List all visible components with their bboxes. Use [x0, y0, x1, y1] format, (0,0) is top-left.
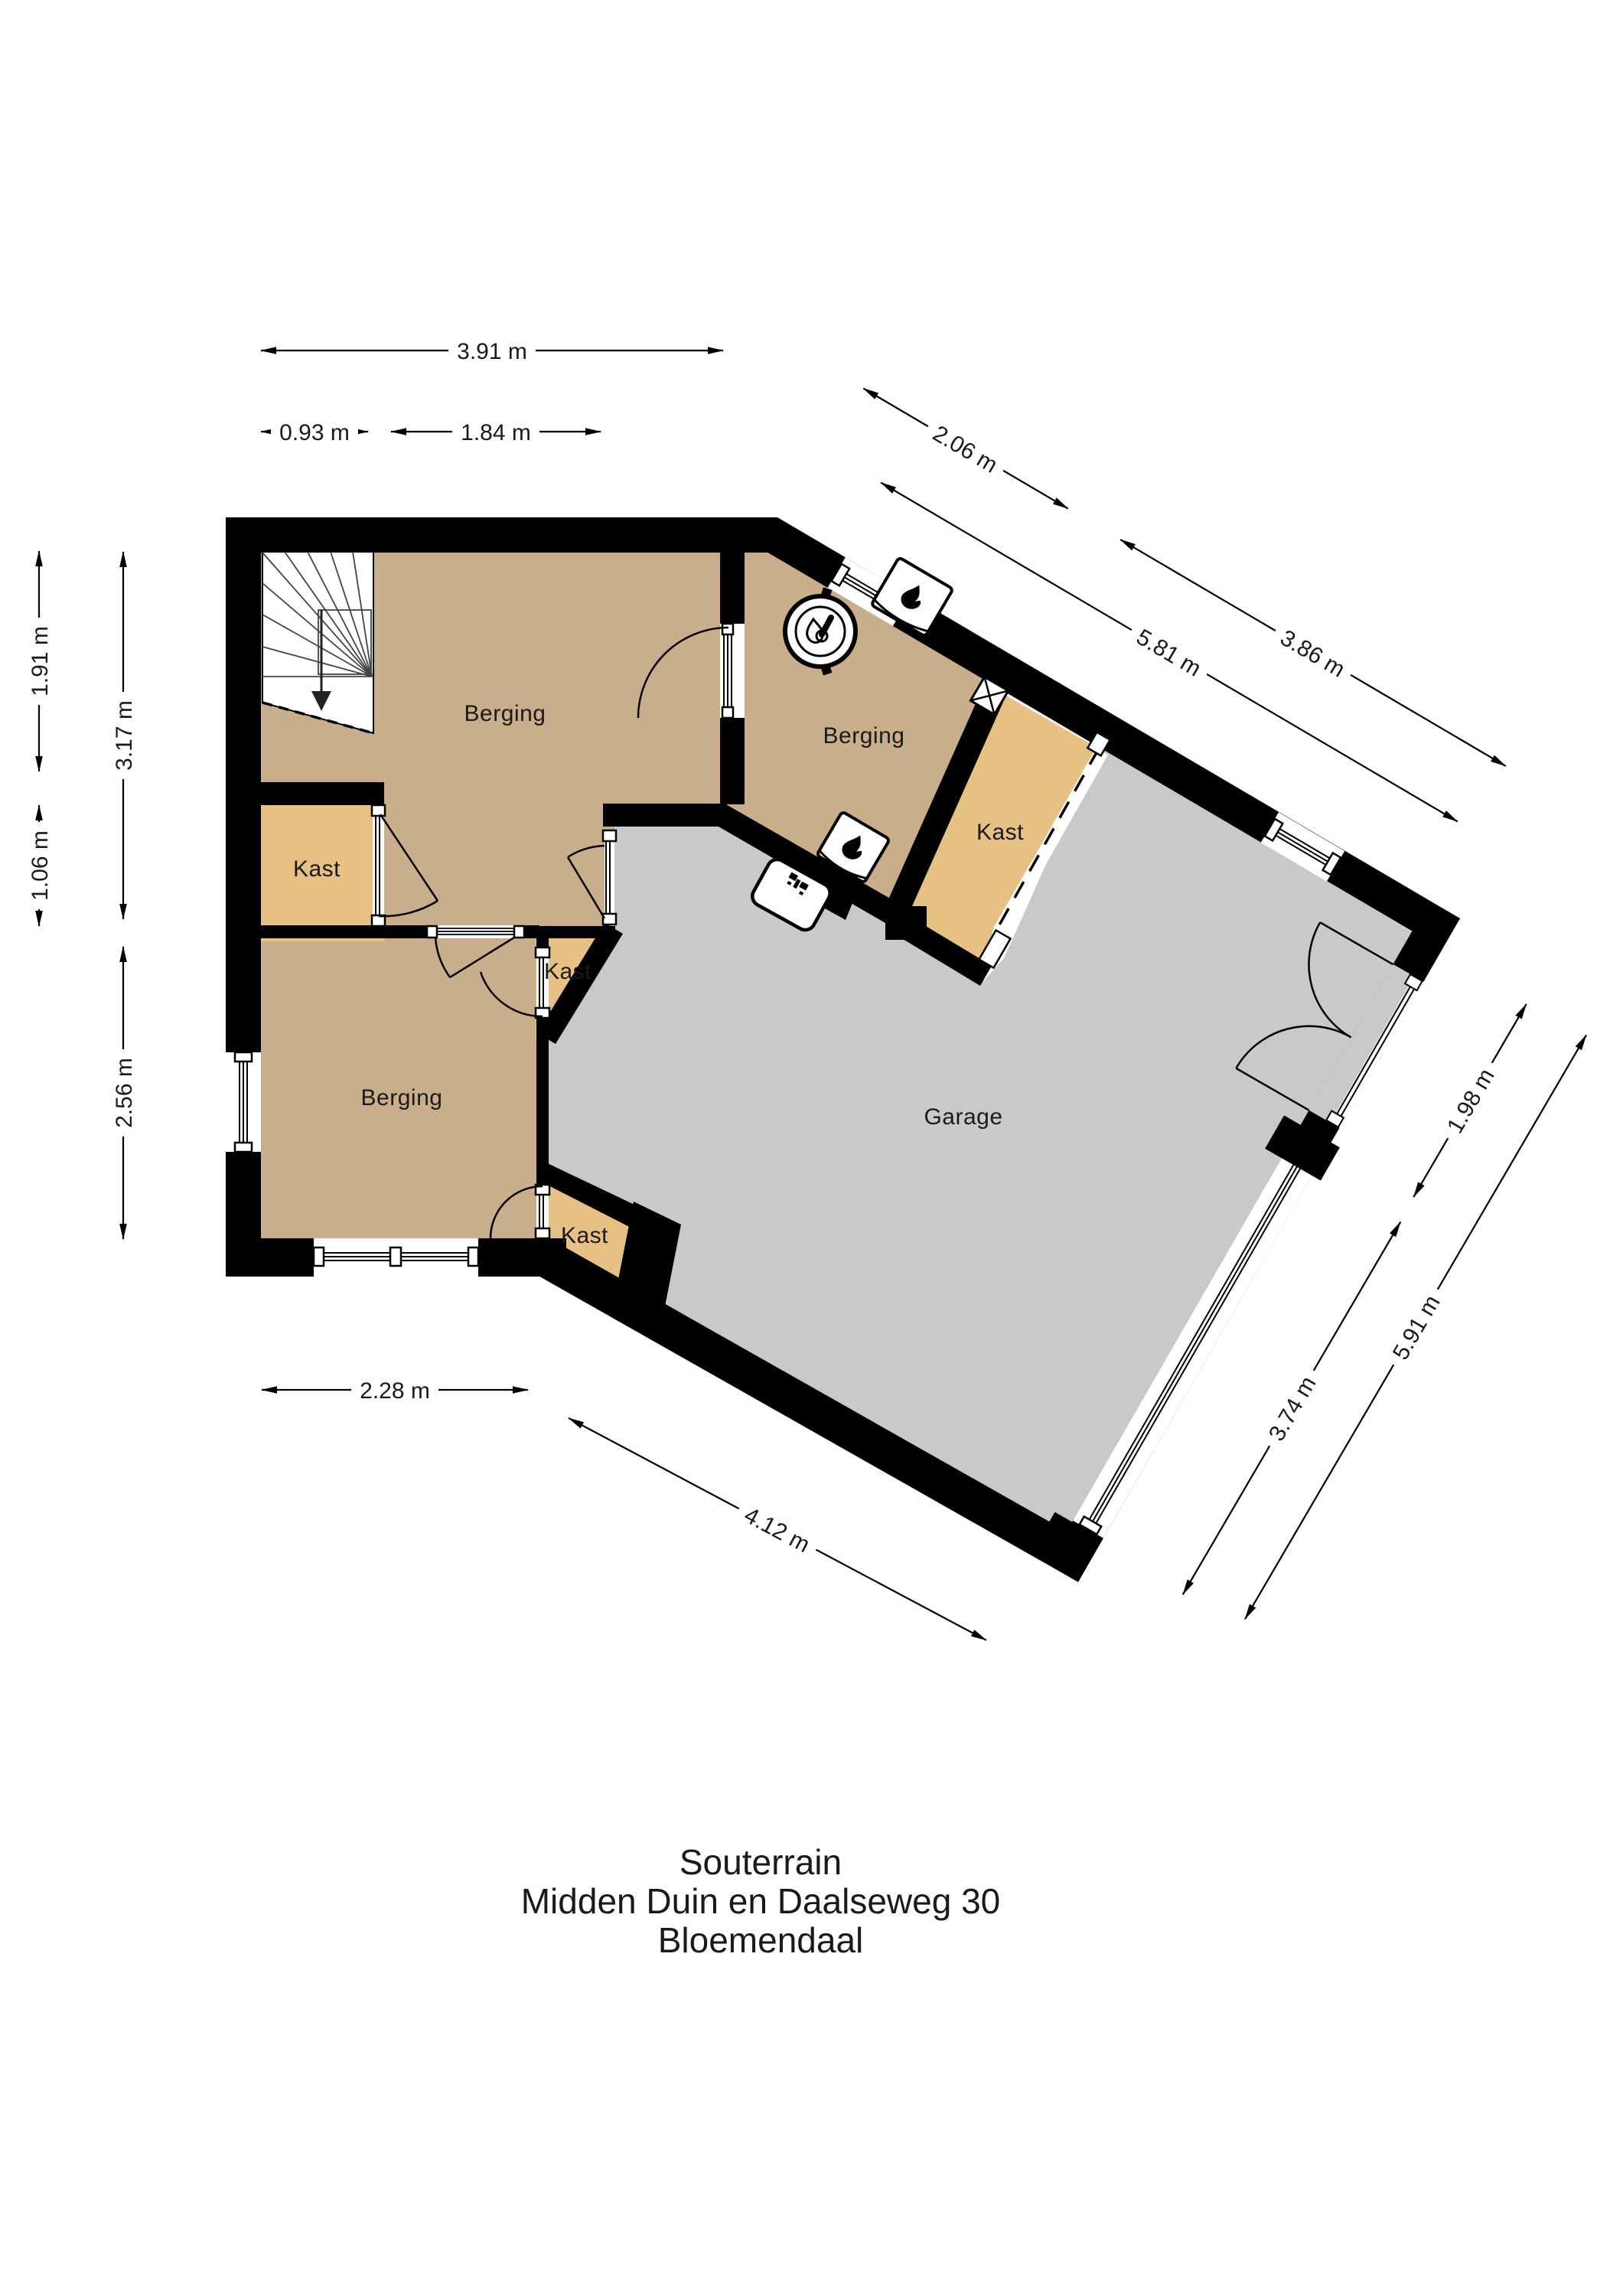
svg-text:0.93 m: 0.93 m: [279, 420, 350, 445]
svg-text:Kast: Kast: [293, 856, 341, 882]
svg-text:Berging: Berging: [823, 723, 905, 748]
svg-text:Kast: Kast: [561, 1223, 608, 1248]
svg-text:Berging: Berging: [361, 1085, 443, 1110]
svg-text:1.06 m: 1.06 m: [28, 830, 53, 901]
svg-text:3.17 m: 3.17 m: [112, 700, 137, 771]
svg-text:Berging: Berging: [464, 701, 546, 726]
svg-text:1.84 m: 1.84 m: [461, 420, 531, 445]
svg-text:Kast: Kast: [544, 959, 592, 984]
svg-text:Bloemendaal: Bloemendaal: [658, 1920, 864, 1960]
svg-text:2.28 m: 2.28 m: [360, 1378, 430, 1404]
svg-text:Souterrain: Souterrain: [680, 1842, 842, 1882]
svg-text:Garage: Garage: [924, 1104, 1002, 1130]
svg-text:1.91 m: 1.91 m: [28, 626, 53, 696]
svg-text:2.56 m: 2.56 m: [112, 1058, 137, 1128]
svg-text:Kast: Kast: [976, 820, 1024, 845]
svg-text:Midden Duin en Daalseweg 30: Midden Duin en Daalseweg 30: [521, 1881, 1001, 1921]
svg-text:3.91 m: 3.91 m: [457, 339, 527, 364]
